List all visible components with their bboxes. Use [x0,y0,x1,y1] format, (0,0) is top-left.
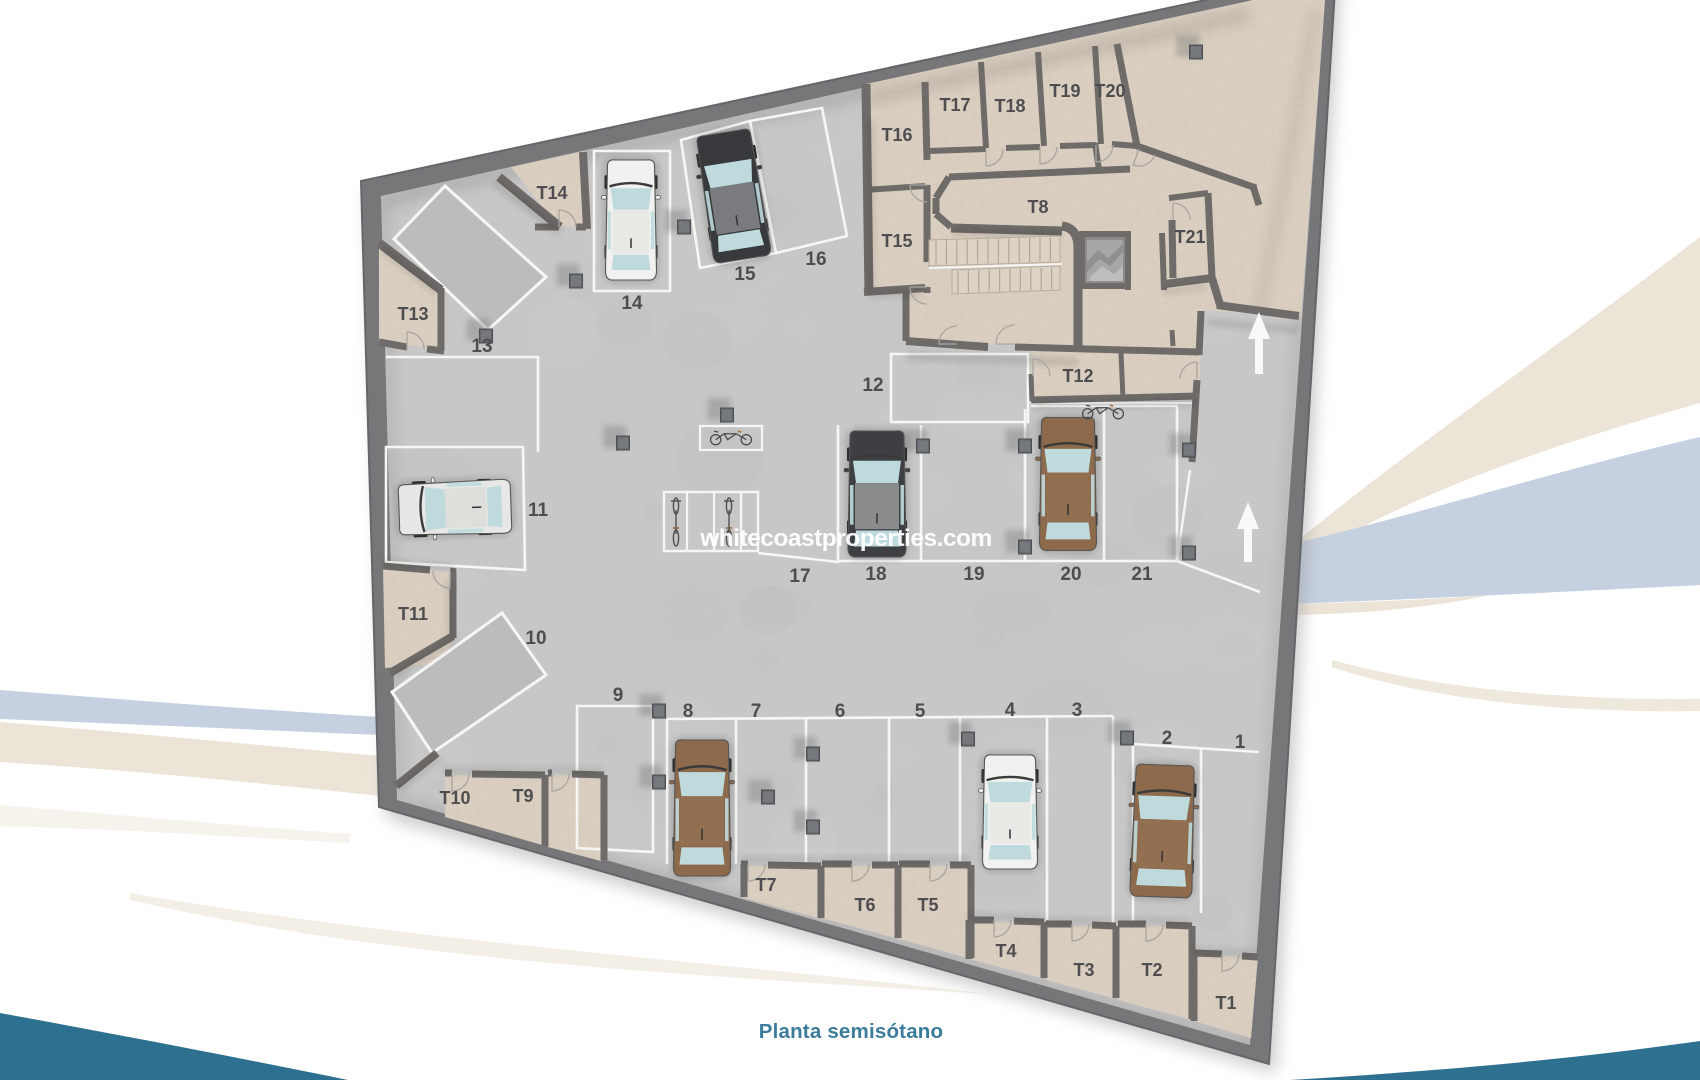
svg-text:18: 18 [865,564,886,585]
svg-text:17: 17 [789,566,810,587]
svg-text:T5: T5 [917,895,938,915]
svg-text:T20: T20 [1094,81,1125,101]
svg-text:T14: T14 [536,183,567,203]
svg-text:T2: T2 [1141,960,1162,980]
svg-text:13: 13 [471,336,492,357]
svg-text:4: 4 [1005,700,1016,721]
svg-text:10: 10 [525,628,546,649]
svg-text:T10: T10 [439,788,470,808]
svg-text:T6: T6 [854,895,875,915]
svg-text:T13: T13 [397,304,428,324]
svg-text:T21: T21 [1174,227,1205,247]
svg-text:3: 3 [1072,700,1083,721]
svg-text:1: 1 [1235,732,1246,753]
svg-text:2: 2 [1162,728,1173,749]
svg-text:21: 21 [1131,564,1153,585]
svg-text:T1: T1 [1215,993,1236,1013]
svg-text:Planta semisótano: Planta semisótano [759,1020,944,1043]
svg-text:9: 9 [613,685,624,706]
svg-text:8: 8 [683,701,694,722]
svg-text:5: 5 [915,701,926,722]
svg-text:19: 19 [963,564,984,585]
svg-text:T16: T16 [881,125,912,145]
svg-text:T7: T7 [755,875,776,895]
svg-text:T19: T19 [1049,81,1080,101]
svg-text:11: 11 [528,500,549,521]
svg-text:T9: T9 [512,786,533,806]
svg-text:T17: T17 [939,95,970,115]
svg-text:T12: T12 [1062,366,1093,386]
svg-text:12: 12 [862,375,883,396]
svg-text:20: 20 [1060,564,1081,585]
svg-text:T3: T3 [1073,960,1094,980]
svg-text:T4: T4 [995,941,1016,961]
svg-text:T18: T18 [994,96,1025,116]
svg-text:T15: T15 [881,231,912,251]
svg-text:14: 14 [621,293,643,314]
svg-text:6: 6 [835,701,846,722]
svg-text:7: 7 [751,701,762,722]
svg-text:T8: T8 [1027,197,1048,217]
svg-text:15: 15 [734,264,756,285]
svg-text:whitecoastproperties.com: whitecoastproperties.com [699,525,992,552]
svg-text:T11: T11 [398,604,428,624]
svg-text:16: 16 [805,249,826,270]
